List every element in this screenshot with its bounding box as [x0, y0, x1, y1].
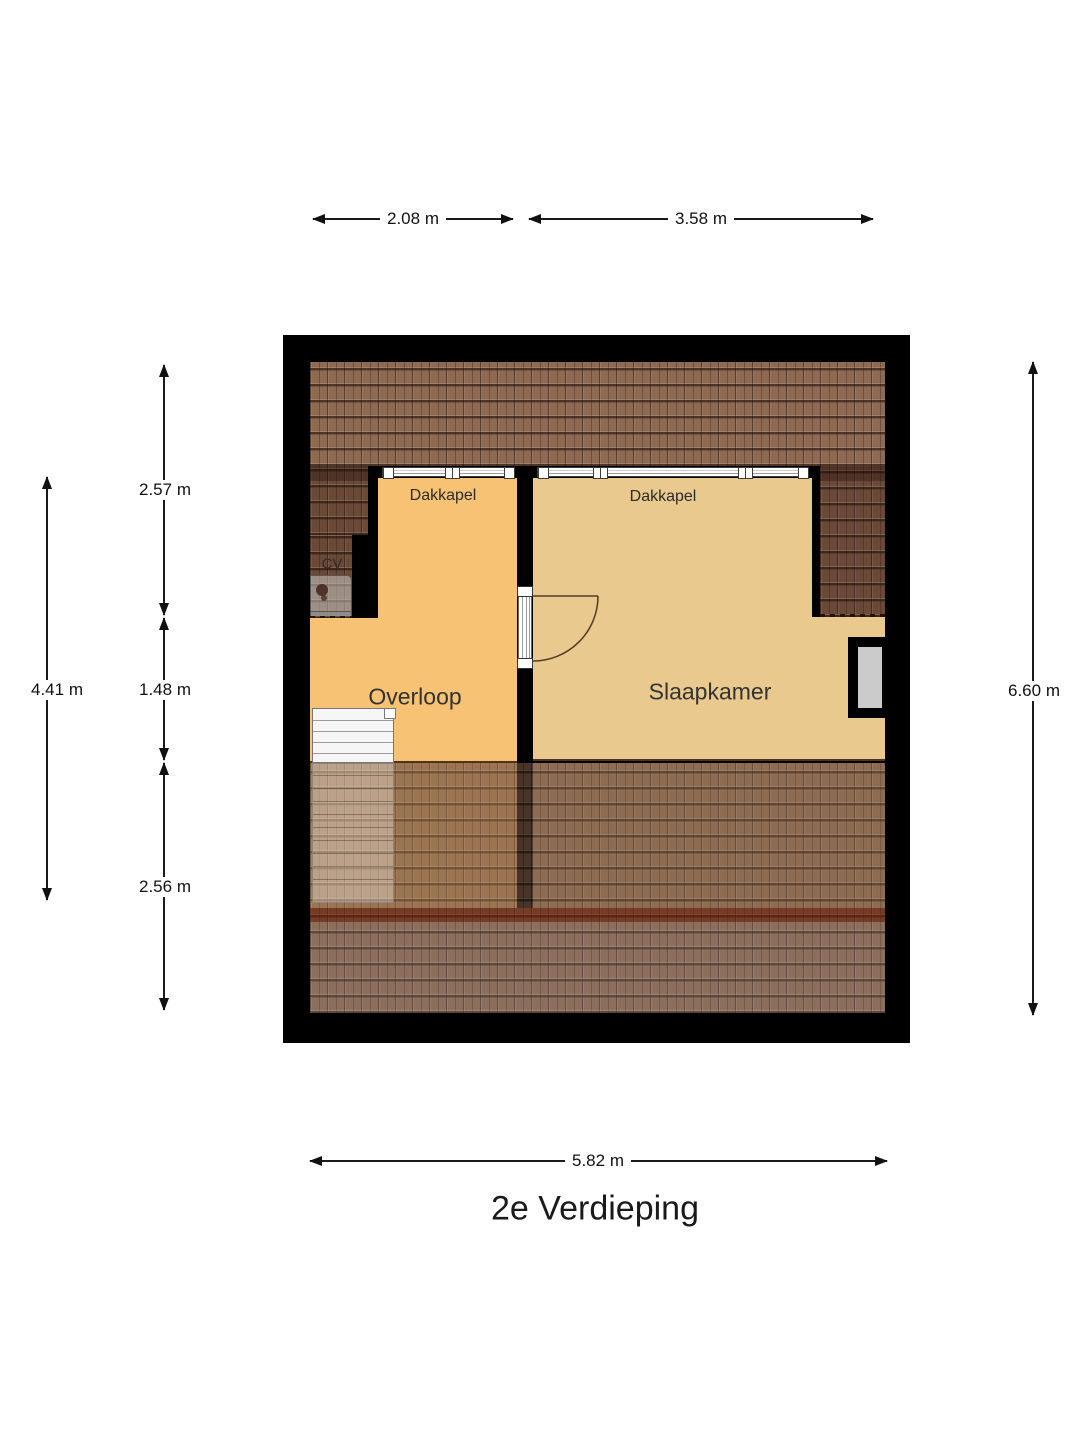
- window-post-icon: [504, 467, 515, 479]
- staircase-ghost: [312, 763, 394, 903]
- stair-step-ghost: [313, 840, 393, 841]
- window-mullion-icon: [452, 467, 460, 479]
- arrow-head-icon: [1028, 361, 1038, 374]
- arrow-head-icon: [159, 603, 169, 616]
- door-swing-icon: [517, 585, 607, 675]
- dim-label-left-lower: 2.56 m: [132, 877, 198, 897]
- window-mullion-icon: [600, 467, 608, 479]
- dim-label-left-outer: 4.41 m: [24, 680, 90, 700]
- stair-step-ghost: [313, 866, 393, 867]
- arrow-head-icon: [528, 214, 541, 224]
- arrow-head-icon: [159, 762, 169, 775]
- dormer-right-label: Dakkapel: [630, 488, 697, 506]
- chimney-niche-fill: [858, 647, 882, 708]
- roof-right-shadow-band: [820, 466, 885, 481]
- bedroom-ghost: [533, 763, 885, 908]
- arrow-head-icon: [42, 476, 52, 489]
- arrow-head-icon: [159, 998, 169, 1011]
- dormer-left-label: Dakkapel: [410, 487, 477, 505]
- stair-step-ghost: [313, 775, 393, 776]
- bedroom-label: Slaapkamer: [649, 679, 772, 706]
- stair-step-ghost: [313, 788, 393, 789]
- arrow-head-icon: [159, 364, 169, 377]
- dim-label-left-middle: 1.48 m: [132, 680, 198, 700]
- arrow-head-icon: [309, 1156, 322, 1166]
- dormer-left-window: [382, 467, 512, 477]
- arrow-head-icon: [42, 888, 52, 901]
- dormer-right-window: [537, 467, 806, 477]
- roof-bottom-light-wash: [310, 922, 885, 1013]
- arrow-head-icon: [875, 1156, 888, 1166]
- floorplan: Dakkapel Dakkapel CV Overloop Slaapkamer: [283, 335, 910, 1043]
- eave-band: [310, 908, 885, 922]
- arrow-head-icon: [159, 748, 169, 761]
- roof-right: [820, 466, 885, 617]
- stair-step-ghost: [313, 853, 393, 854]
- cv-label: CV: [322, 556, 343, 573]
- roof-left-shadow-band: [310, 466, 368, 481]
- arrow-head-icon: [312, 214, 325, 224]
- arrow-head-icon: [1028, 1003, 1038, 1016]
- arrow-head-icon: [159, 617, 169, 630]
- arrow-head-icon: [861, 214, 874, 224]
- cv-valve-icon: [321, 595, 327, 601]
- window-post-icon: [798, 467, 809, 479]
- stair-step-ghost: [313, 814, 393, 815]
- dim-label-bottom: 5.82 m: [565, 1151, 631, 1171]
- dim-label-top-left: 2.08 m: [380, 209, 446, 229]
- dim-label-top-right: 3.58 m: [668, 209, 734, 229]
- stair-step: [313, 742, 393, 743]
- stair-step-ghost: [313, 827, 393, 828]
- stair-step-ghost: [313, 879, 393, 880]
- page-title: 2e Verdieping: [491, 1190, 699, 1229]
- dim-label-left-upper: 2.57 m: [132, 480, 198, 500]
- window-mullion-icon: [745, 467, 753, 479]
- stair-step: [313, 731, 393, 732]
- stair-step: [313, 753, 393, 754]
- landing-label: Overloop: [368, 684, 461, 711]
- stair-step: [313, 720, 393, 721]
- staircase: [312, 708, 394, 763]
- window-post-icon: [383, 467, 394, 479]
- stair-step-ghost: [313, 801, 393, 802]
- dim-label-right: 6.60 m: [1001, 681, 1067, 701]
- roof-top-slope: [310, 362, 885, 466]
- wall-ghost: [517, 763, 533, 908]
- window-post-icon: [538, 467, 549, 479]
- floorplan-page: Dakkapel Dakkapel CV Overloop Slaapkamer…: [0, 0, 1080, 1440]
- arrow-head-icon: [501, 214, 514, 224]
